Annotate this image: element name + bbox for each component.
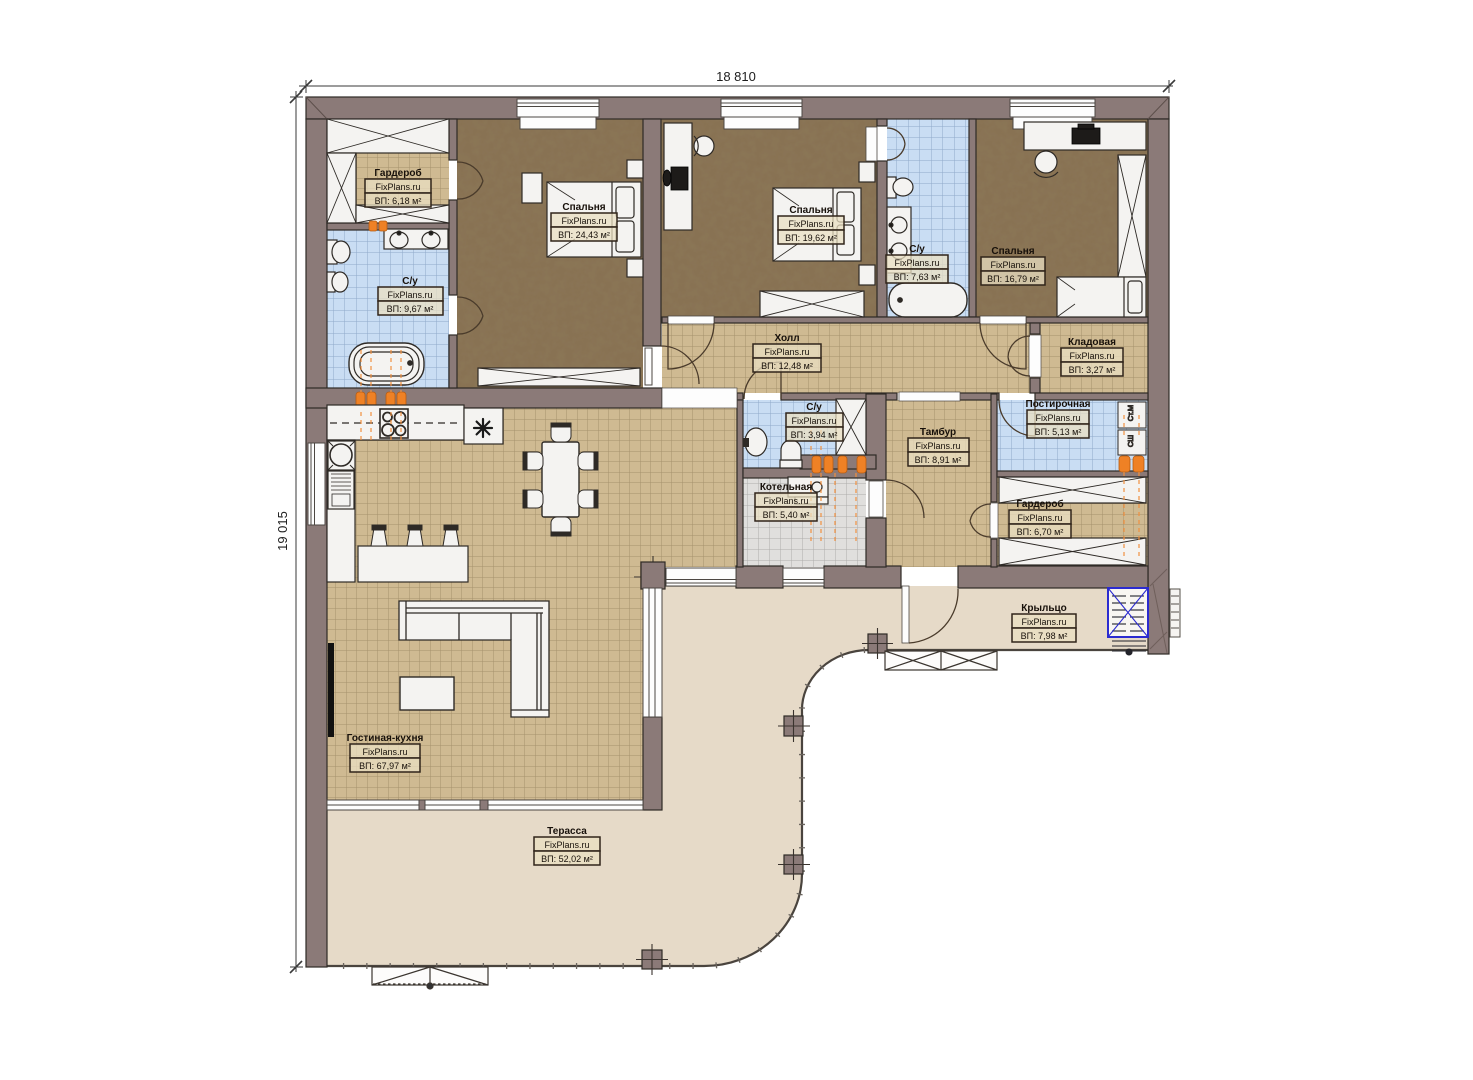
svg-text:FixPlans.ru: FixPlans.ru: [1021, 617, 1066, 627]
svg-text:FixPlans.ru: FixPlans.ru: [990, 260, 1035, 270]
svg-text:Холл: Холл: [774, 333, 799, 344]
svg-text:FixPlans.ru: FixPlans.ru: [375, 182, 420, 192]
svg-text:FixPlans.ru: FixPlans.ru: [362, 747, 407, 757]
svg-text:ВП: 67,97 м²: ВП: 67,97 м²: [359, 761, 411, 771]
svg-text:Спальня: Спальня: [789, 205, 832, 216]
svg-text:18 810: 18 810: [716, 69, 756, 84]
svg-text:FixPlans.ru: FixPlans.ru: [791, 416, 836, 426]
svg-text:С/у: С/у: [402, 276, 418, 287]
svg-text:С/у: С/у: [806, 402, 822, 413]
svg-text:ВП: 19,62 м²: ВП: 19,62 м²: [785, 233, 837, 243]
svg-text:ВП: 52,02 м²: ВП: 52,02 м²: [541, 854, 593, 864]
svg-text:ВП: 7,63 м²: ВП: 7,63 м²: [894, 272, 941, 282]
svg-text:ВП: 3,27 м²: ВП: 3,27 м²: [1069, 365, 1116, 375]
svg-text:Гостиная-кухня: Гостиная-кухня: [347, 733, 424, 744]
svg-text:ВП: 8,91 м²: ВП: 8,91 м²: [915, 455, 962, 465]
svg-text:Гардероб: Гардероб: [1016, 498, 1063, 510]
svg-text:Спальня: Спальня: [562, 202, 605, 213]
svg-text:Тамбур: Тамбур: [920, 426, 956, 438]
svg-text:FixPlans.ru: FixPlans.ru: [894, 258, 939, 268]
svg-text:С/у: С/у: [909, 244, 925, 255]
svg-text:ВП: 5,40 м²: ВП: 5,40 м²: [763, 510, 810, 520]
svg-text:FixPlans.ru: FixPlans.ru: [764, 347, 809, 357]
svg-text:FixPlans.ru: FixPlans.ru: [763, 496, 808, 506]
svg-text:Кладовая: Кладовая: [1068, 337, 1116, 348]
svg-text:ВП: 6,18 м²: ВП: 6,18 м²: [375, 196, 422, 206]
svg-text:ВП: 5,13 м²: ВП: 5,13 м²: [1035, 427, 1082, 437]
svg-text:FixPlans.ru: FixPlans.ru: [1035, 413, 1080, 423]
svg-text:ВП: 7,98 м²: ВП: 7,98 м²: [1021, 631, 1068, 641]
svg-text:19 015: 19 015: [275, 511, 290, 551]
svg-text:СШ: СШ: [1126, 435, 1135, 447]
svg-text:ВП: 24,43 м²: ВП: 24,43 м²: [558, 230, 610, 240]
svg-text:ВП: 3,94 м²: ВП: 3,94 м²: [791, 430, 838, 440]
svg-text:ВП: 16,79 м²: ВП: 16,79 м²: [987, 274, 1039, 284]
svg-text:FixPlans.ru: FixPlans.ru: [561, 216, 606, 226]
svg-text:FixPlans.ru: FixPlans.ru: [1017, 513, 1062, 523]
svg-text:FixPlans.ru: FixPlans.ru: [544, 840, 589, 850]
svg-text:ВП: 12,48 м²: ВП: 12,48 м²: [761, 361, 813, 371]
svg-text:FixPlans.ru: FixPlans.ru: [387, 290, 432, 300]
svg-text:FixPlans.ru: FixPlans.ru: [788, 219, 833, 229]
svg-text:Гардероб: Гардероб: [374, 167, 421, 179]
svg-text:Спальня: Спальня: [991, 246, 1034, 257]
svg-text:ВП: 9,67 м²: ВП: 9,67 м²: [387, 304, 434, 314]
svg-text:ВП: 6,70 м²: ВП: 6,70 м²: [1017, 527, 1064, 537]
svg-text:Крыльцо: Крыльцо: [1021, 603, 1067, 614]
svg-text:Котельная: Котельная: [760, 482, 813, 493]
svg-text:Постирочная: Постирочная: [1026, 399, 1091, 410]
svg-text:Терасса: Терасса: [547, 826, 587, 837]
svg-text:FixPlans.ru: FixPlans.ru: [915, 441, 960, 451]
svg-text:FixPlans.ru: FixPlans.ru: [1069, 351, 1114, 361]
svg-text:Ст.М: Ст.М: [1126, 405, 1135, 421]
